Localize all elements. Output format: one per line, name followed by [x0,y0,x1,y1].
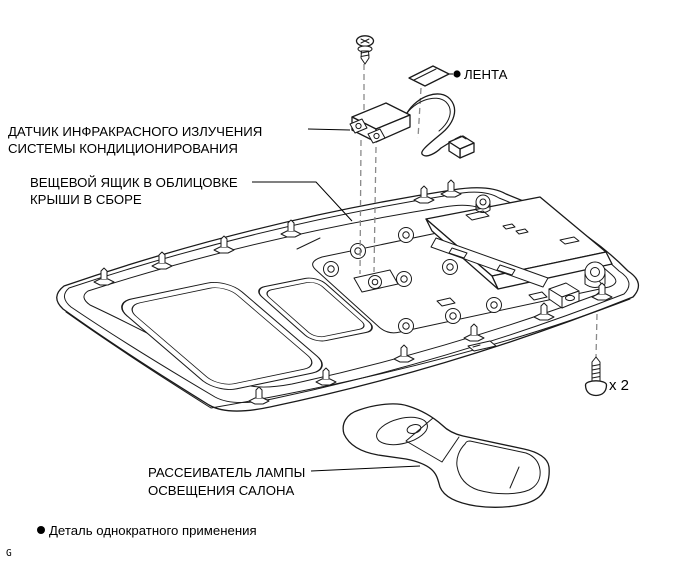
harness-connector [449,136,474,158]
footnote: Деталь однократного применения [37,523,257,538]
exploded-view-diagram: ЛЕНТА ДАТЧИК ИНФРАКРАСНОГО ИЗЛУЧЕНИЯ СИС… [0,0,690,564]
label-roof-box-line2: КРЫШИ В СБОРЕ [30,192,142,207]
tapping-screw-top [357,36,374,64]
diagram-page: ЛЕНТА ДАТЧИК ИНФРАКРАСНОГО ИЗЛУЧЕНИЯ СИС… [0,0,690,564]
leader-lamp-lens [311,466,420,471]
label-ir-sensor-line2: СИСТЕМЫ КОНДИЦИОНИРОВАНИЯ [8,141,238,156]
single-use-bullet-legend [37,526,45,534]
label-lamp-lens-line1: РАССЕИВАТЕЛЬ ЛАМПЫ [148,465,305,480]
label-tape: ЛЕНТА [464,67,508,82]
bottom-screw-guide-dashline [596,314,597,358]
adhesive-tape [409,66,449,86]
leader-ir-sensor [308,129,350,130]
interior-lamp-lens [343,404,549,507]
label-roof-box-line1: ВЕЩЕВОЙ ЯЩИК В ОБЛИЦОВКЕ [30,175,238,190]
footnote-text: Деталь однократного применения [49,523,257,538]
label-screw-quantity: x 2 [609,377,629,394]
page-marker: G [6,548,12,559]
roof-headliner-panel [57,180,639,411]
ir-sensor-assembly [350,94,474,158]
tape-guide-dashline [418,88,421,138]
single-use-bullet-tape [453,70,460,77]
ir-sensor-body [350,103,410,143]
label-ir-sensor-line1: ДАТЧИК ИНФРАКРАСНОГО ИЗЛУЧЕНИЯ [8,124,262,139]
label-lamp-lens-line2: ОСВЕЩЕНИЯ САЛОНА [148,483,294,498]
tapping-screw-bottom [586,357,607,396]
